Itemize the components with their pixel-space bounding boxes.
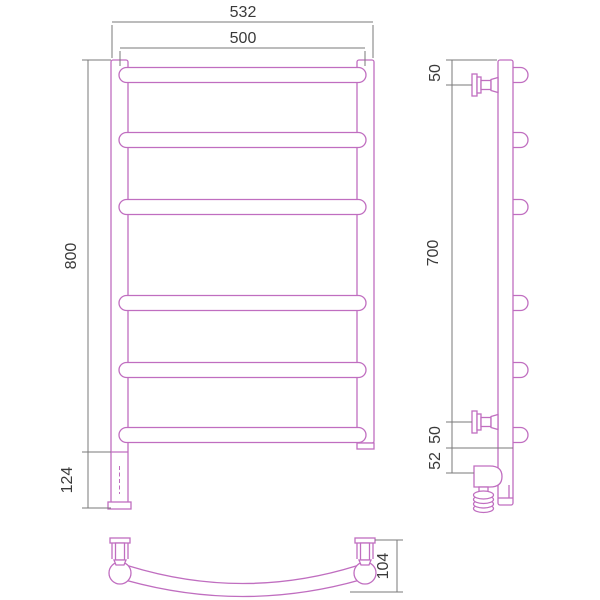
- bottom-view: 104: [109, 538, 403, 597]
- towel-rail-drawing: 532 500 800 124: [0, 0, 600, 600]
- rung-6: [119, 428, 366, 443]
- rung-2: [119, 133, 366, 148]
- rung-1: [119, 68, 366, 83]
- front-view: 532 500 800 124: [59, 4, 374, 509]
- curved-rung-band: [125, 566, 360, 597]
- dim-height: 800: [63, 60, 111, 452]
- dim-label-50-bottom: 50: [427, 426, 444, 444]
- dim-label-52: 52: [427, 452, 444, 470]
- coiled-power-cord: [474, 491, 494, 513]
- bottom-view-bracket-right: [355, 538, 375, 565]
- wall-bracket-top: [472, 74, 498, 96]
- front-leg-end-cap: [108, 502, 131, 509]
- dim-label-124: 124: [59, 467, 76, 494]
- rung-5: [119, 363, 366, 378]
- front-right-rail: [357, 60, 374, 443]
- dim-label-532: 532: [230, 4, 257, 21]
- front-right-rail-cap: [357, 443, 374, 449]
- side-view: 50 700 50 52: [425, 60, 528, 513]
- rung-3: [119, 200, 366, 215]
- dim-rung-width: 500: [120, 30, 365, 66]
- dim-leg: 124: [59, 452, 111, 508]
- dim-label-800: 800: [63, 243, 80, 270]
- rung-4: [119, 296, 366, 311]
- dim-label-50-top: 50: [427, 64, 444, 82]
- bottom-view-bracket-left: [110, 538, 130, 565]
- side-rail: [498, 60, 513, 505]
- dim-label-500: 500: [230, 30, 257, 47]
- dim-label-700: 700: [425, 240, 442, 267]
- drawing-canvas: 532 500 800 124: [0, 0, 600, 600]
- wall-bracket-bottom: [472, 411, 498, 433]
- dim-label-104: 104: [375, 553, 392, 580]
